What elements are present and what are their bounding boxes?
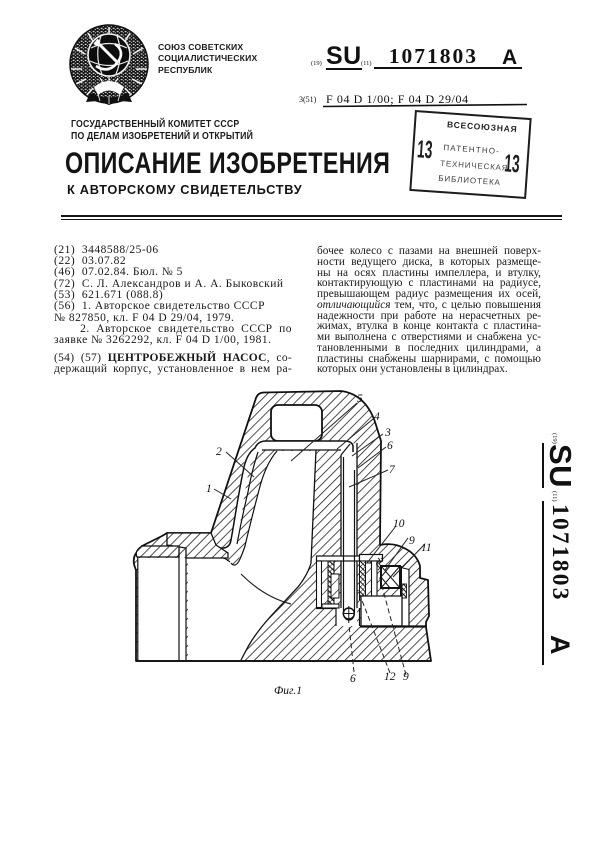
svg-text:7: 7	[389, 464, 396, 476]
svg-text:6: 6	[350, 673, 356, 685]
svg-text:2: 2	[216, 446, 222, 458]
svg-text:1: 1	[206, 483, 212, 495]
svg-text:6: 6	[387, 440, 393, 452]
svg-text:3: 3	[384, 427, 391, 439]
svg-text:5: 5	[357, 393, 363, 405]
svg-text:4: 4	[374, 411, 380, 423]
svg-text:12: 12	[384, 671, 396, 683]
svg-text:11: 11	[421, 542, 432, 554]
svg-text:10: 10	[393, 518, 405, 530]
svg-text:Фиг.1: Фиг.1	[274, 685, 302, 697]
svg-text:9: 9	[403, 671, 409, 683]
svg-text:9: 9	[409, 535, 415, 547]
